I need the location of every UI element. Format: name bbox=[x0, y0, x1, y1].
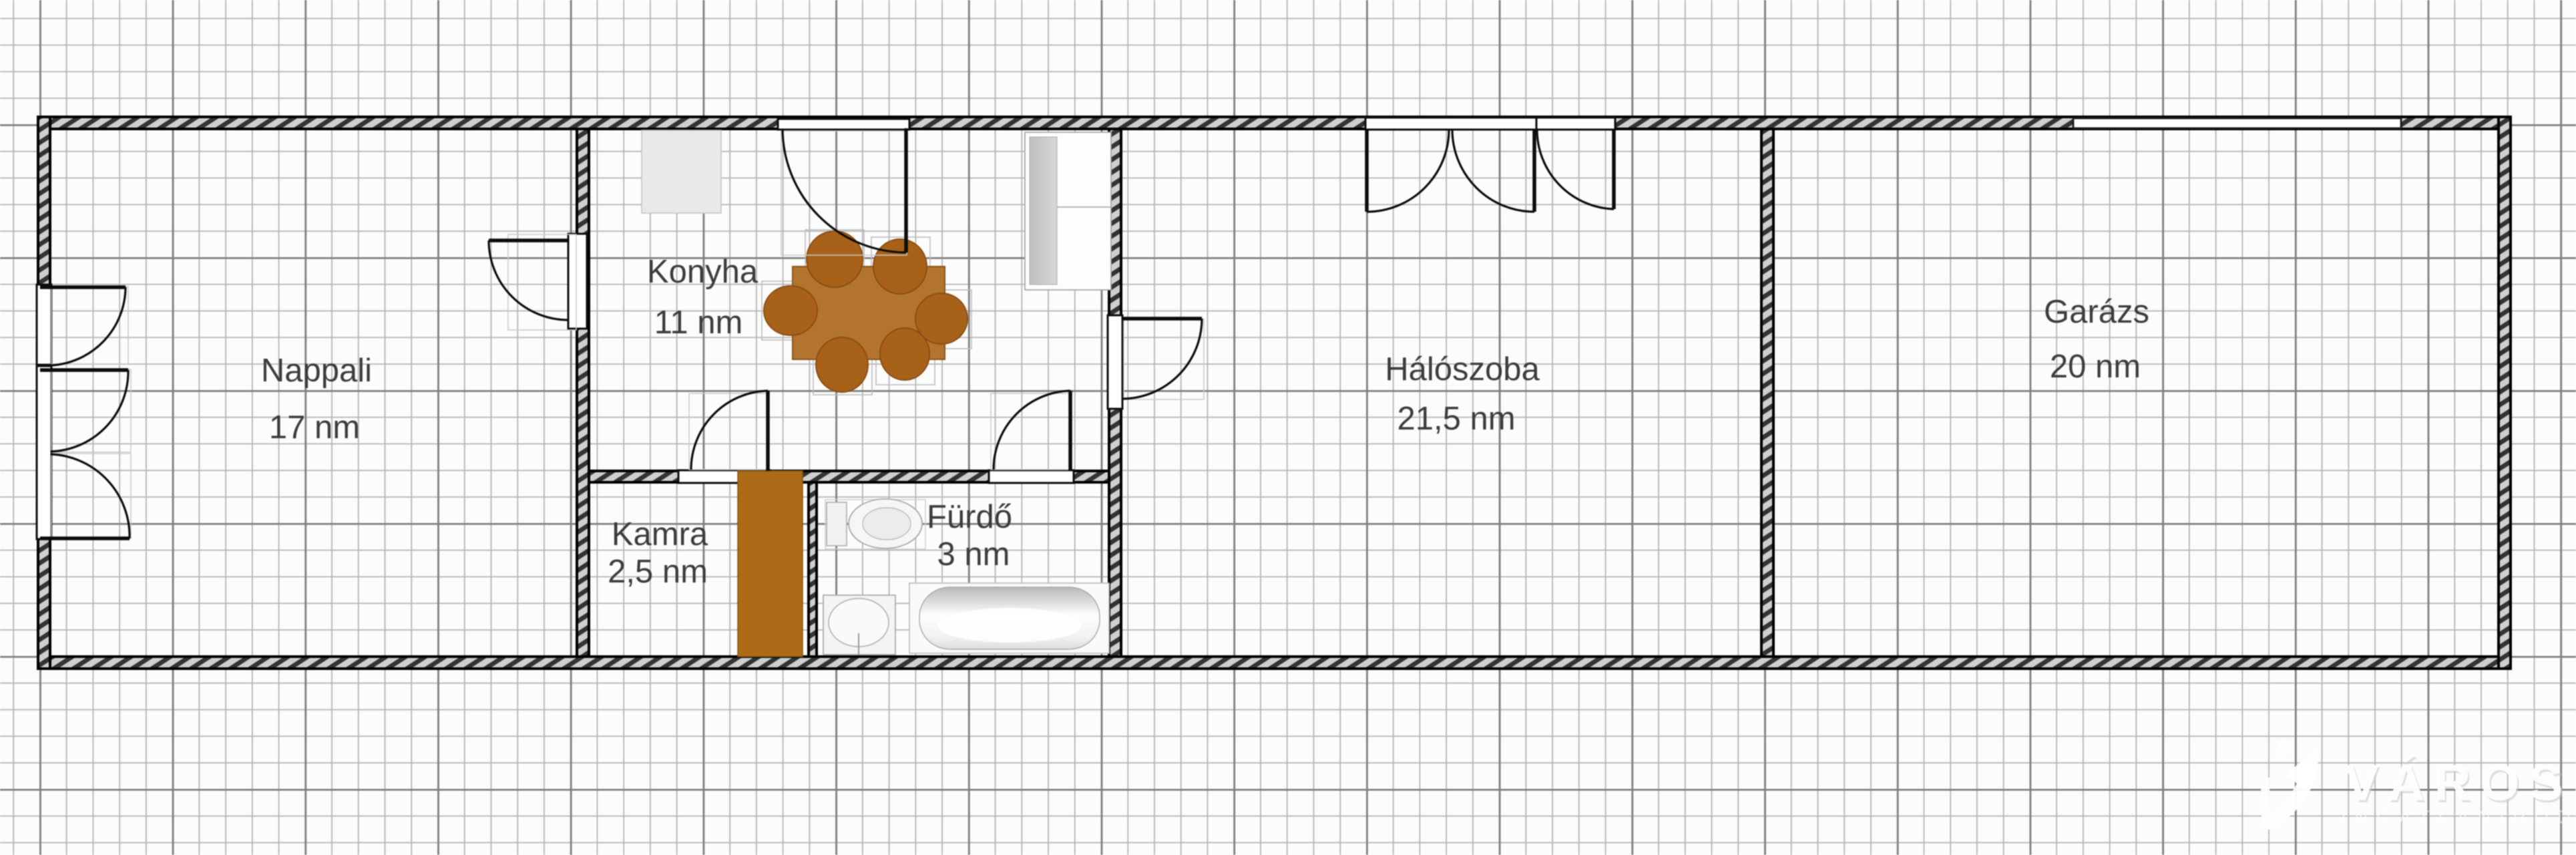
svg-text:3 nm: 3 nm bbox=[937, 536, 1010, 572]
svg-text:Fürdő: Fürdő bbox=[927, 499, 1012, 535]
svg-text:Garázs: Garázs bbox=[2044, 294, 2149, 330]
svg-text:VÁROSI: VÁROSI bbox=[2345, 755, 2576, 812]
svg-text:Nappali: Nappali bbox=[261, 353, 372, 389]
svg-text:Hálószoba: Hálószoba bbox=[1385, 351, 1540, 387]
svg-text:Konyha: Konyha bbox=[647, 254, 759, 290]
svg-text:21,5 nm: 21,5 nm bbox=[1397, 401, 1515, 437]
svg-text:11 nm: 11 nm bbox=[654, 305, 743, 341]
svg-text:2,5 nm: 2,5 nm bbox=[608, 554, 708, 590]
svg-text:Kamra: Kamra bbox=[612, 516, 708, 552]
svg-text:20 nm: 20 nm bbox=[2050, 349, 2141, 385]
svg-text:17 nm: 17 nm bbox=[269, 409, 360, 446]
svg-text:INGATLANIRODA: INGATLANIRODA bbox=[2341, 807, 2576, 827]
